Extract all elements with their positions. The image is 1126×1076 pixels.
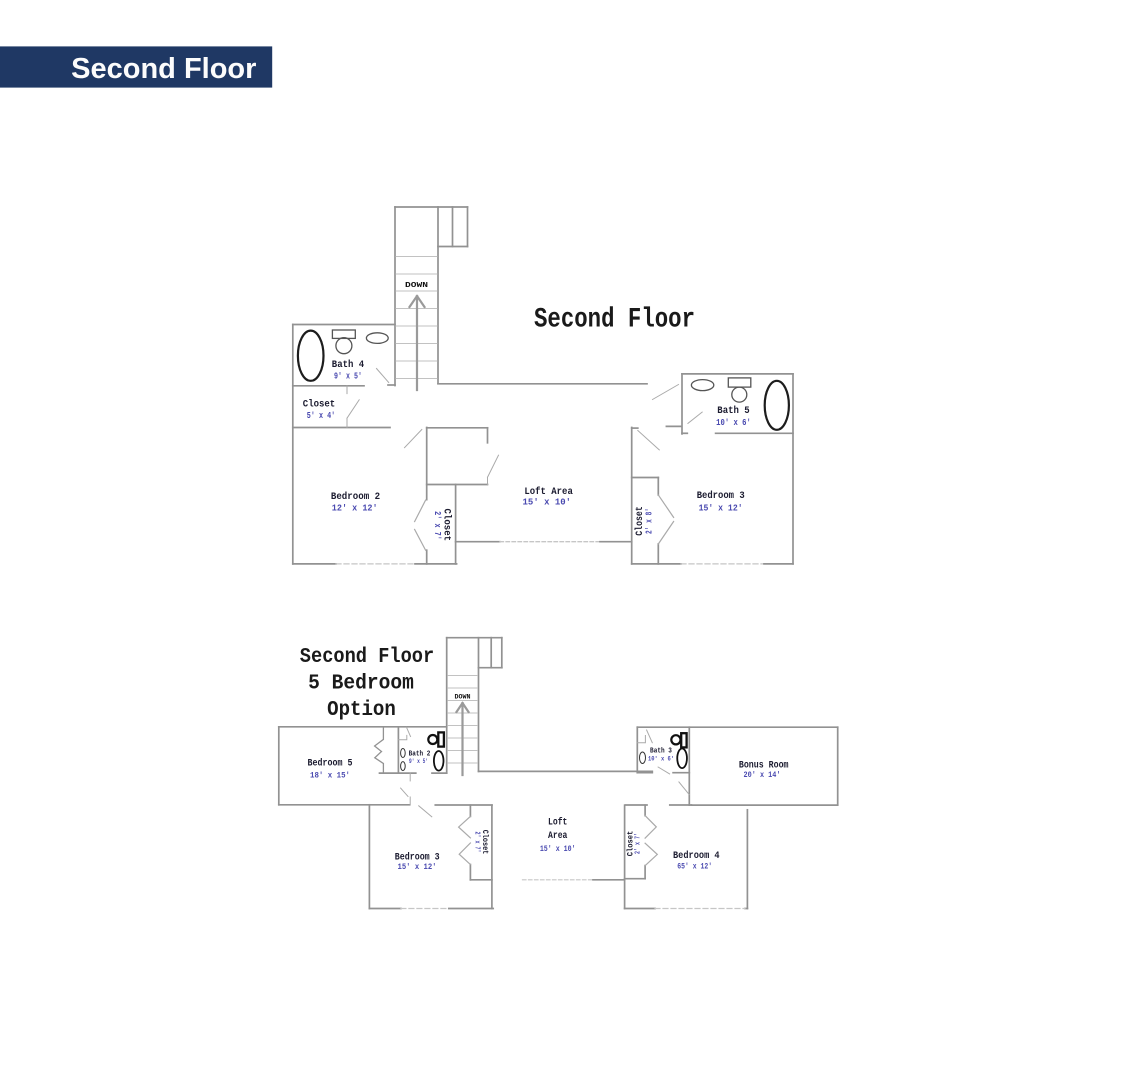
- svg-text:15' x 10': 15' x 10': [523, 498, 572, 508]
- svg-text:2' x 7': 2' x 7': [634, 833, 642, 854]
- svg-text:Loft: Loft: [548, 817, 567, 829]
- svg-text:Bedroom 2: Bedroom 2: [331, 491, 380, 503]
- svg-text:9' x 5': 9' x 5': [334, 372, 362, 382]
- svg-text:12' x 12': 12' x 12': [332, 504, 378, 514]
- svg-text:DOWN: DOWN: [455, 694, 471, 701]
- svg-text:Closet: Closet: [303, 399, 335, 411]
- svg-text:15' x 10': 15' x 10': [540, 845, 576, 854]
- svg-text:5' x 4': 5' x 4': [307, 411, 335, 421]
- svg-text:Loft Area: Loft Area: [524, 486, 573, 498]
- svg-text:2' x 7': 2' x 7': [432, 511, 442, 540]
- svg-text:2' x 8': 2' x 8': [645, 508, 655, 534]
- svg-text:Option: Option: [327, 699, 396, 722]
- svg-text:Second Floor: Second Floor: [534, 305, 695, 336]
- svg-text:9' x 5': 9' x 5': [409, 758, 428, 765]
- svg-text:Bath 3: Bath 3: [650, 748, 672, 756]
- svg-text:Bath 5: Bath 5: [717, 405, 749, 417]
- svg-text:Second Floor: Second Floor: [71, 53, 256, 85]
- svg-text:Bedroom 4: Bedroom 4: [673, 850, 720, 862]
- svg-text:15' x 12': 15' x 12': [699, 504, 743, 514]
- svg-text:Bath 4: Bath 4: [332, 359, 364, 371]
- svg-text:18' x 15': 18' x 15': [310, 772, 350, 781]
- svg-text:10' x 6': 10' x 6': [716, 418, 751, 428]
- svg-text:Second Floor: Second Floor: [300, 646, 434, 669]
- svg-text:Bedroom 3: Bedroom 3: [697, 490, 745, 502]
- svg-text:15' x 12': 15' x 12': [398, 863, 437, 872]
- svg-text:Area: Area: [548, 831, 567, 842]
- svg-text:DOWN: DOWN: [405, 282, 428, 290]
- svg-text:2' x 7': 2' x 7': [472, 832, 480, 853]
- svg-text:5 Bedroom: 5 Bedroom: [308, 673, 414, 696]
- svg-text:Closet: Closet: [480, 830, 490, 855]
- svg-text:10' x 6': 10' x 6': [648, 756, 674, 763]
- svg-text:Bedroom 5: Bedroom 5: [308, 758, 353, 770]
- svg-text:65' x 12': 65' x 12': [677, 863, 712, 872]
- svg-text:Bedroom 3: Bedroom 3: [395, 852, 440, 864]
- svg-text:Bonus Room: Bonus Room: [739, 761, 789, 772]
- svg-text:20' x 14': 20' x 14': [744, 771, 781, 780]
